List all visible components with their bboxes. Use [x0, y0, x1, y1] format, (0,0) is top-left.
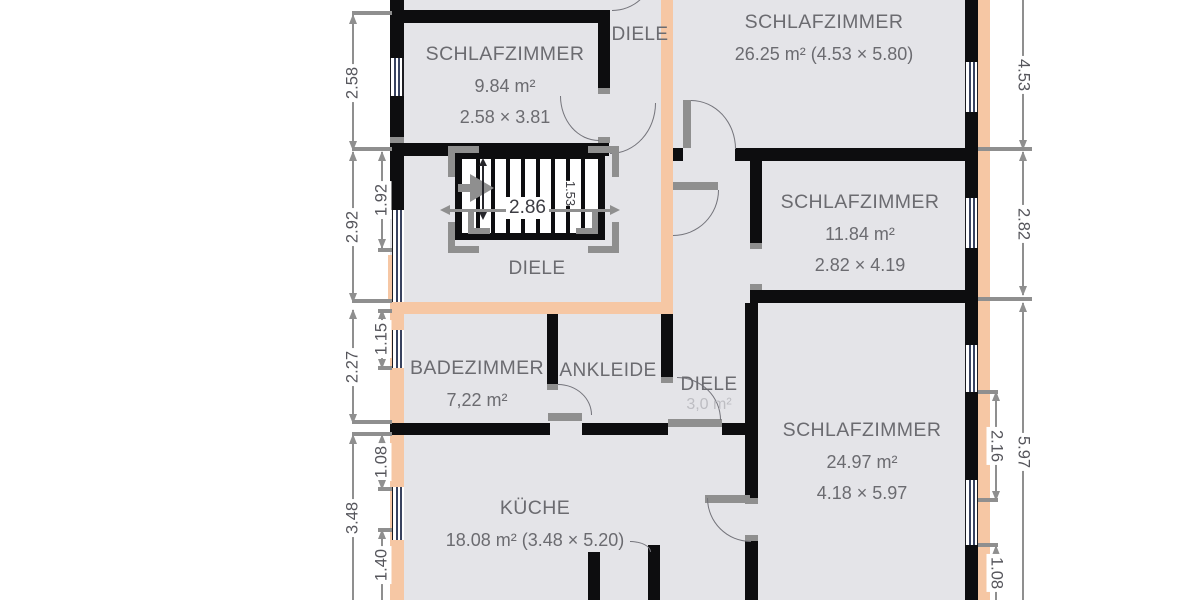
dim-tick [352, 11, 392, 15]
stair-bracket [448, 146, 479, 177]
room-name: DIELE [478, 258, 596, 280]
dim-right-outer-1: 4.53 [1022, 0, 1024, 149]
wall-cap [661, 377, 673, 383]
window [965, 480, 978, 545]
highlight-wall-hall-horizontal [390, 302, 661, 314]
dim-left-outer-2: 2.92 [352, 152, 354, 302]
dim-label: 1.40 [373, 546, 392, 584]
wall [750, 290, 965, 303]
stair-run-label: 2.86 [506, 197, 549, 219]
stair-width-label: 1.53 [563, 181, 578, 206]
wall-cap [598, 137, 610, 143]
wall [673, 148, 683, 161]
wall-cap [390, 137, 404, 143]
room-diele-upper: DIELE [598, 24, 682, 46]
dim-label: 3.48 [344, 498, 363, 536]
room-size: 2.58 × 3.81 [400, 102, 610, 133]
room-name: BADEZIMMER [396, 352, 558, 385]
stair-tread [521, 159, 525, 233]
dim-left-inner-3: 1.08 [381, 435, 383, 489]
room-name: DIELE [676, 374, 742, 396]
dim-label: 2.58 [344, 63, 363, 101]
room-name: SCHLAFZIMMER [400, 38, 610, 71]
room-name: KÜCHE [420, 492, 650, 525]
dim-label: 2.16 [987, 427, 1006, 465]
room-ankleide: ANKLEIDE [555, 360, 661, 382]
dim-left-outer-3: 2.27 [352, 310, 354, 423]
wall [965, 392, 978, 480]
dim-right-inner-1: 2.16 [995, 392, 997, 500]
room-kueche: KÜCHE 18.08 m² (3.48 × 5.20) [420, 492, 650, 556]
room-area: 18.08 m² (3.48 × 5.20) [420, 525, 650, 556]
dim-tick [352, 432, 392, 436]
stair-run-dim-arrow [440, 205, 450, 215]
room-size: 2.82 × 4.19 [756, 250, 964, 281]
window [392, 210, 404, 302]
room-badezimmer: BADEZIMMER 7,22 m² [396, 352, 558, 416]
wall [390, 423, 550, 435]
window [965, 62, 978, 112]
room-area-faint: 3,0 m² [686, 396, 731, 413]
door-leaf [673, 182, 718, 190]
wall [588, 552, 600, 600]
dim-right-inner-2: 1.08 [995, 546, 997, 600]
room-name: SCHLAFZIMMER [758, 414, 966, 447]
dim-left-outer-1: 2.58 [352, 15, 354, 150]
dim-label: 2.27 [344, 347, 363, 385]
room-size: 4.18 × 5.97 [758, 478, 966, 509]
dim-left-inner-2: 1.15 [381, 310, 383, 368]
window [965, 345, 978, 392]
dim-label: 1.08 [987, 554, 1006, 592]
stair-mini-dim-arrow [479, 158, 487, 166]
dim-label: 1.92 [373, 181, 392, 219]
dim-label: 5.97 [1014, 432, 1033, 470]
dim-right-outer-3: 5.97 [1022, 303, 1024, 600]
highlight-wall-center-vertical [661, 0, 673, 314]
room-name: ANKLEIDE [555, 360, 661, 382]
room-area: 26.25 m² (4.53 × 5.80) [688, 39, 960, 70]
dim-tick [352, 420, 392, 424]
stair-bracket [588, 146, 619, 177]
room-name: DIELE [598, 24, 682, 46]
wall [745, 303, 758, 498]
wall [745, 541, 758, 600]
stair-tread [536, 159, 540, 233]
dim-label: 4.53 [1014, 55, 1033, 93]
dim-tick [352, 299, 392, 303]
dim-label: 2.82 [1014, 204, 1033, 242]
window [965, 198, 978, 248]
dim-left-inner-4: 1.40 [381, 530, 383, 600]
room-area: 11.84 m² [756, 219, 964, 250]
room-diele-small: DIELE 3,0 m² [676, 374, 742, 414]
dim-left-outer-4: 3.48 [352, 435, 354, 600]
dim-tick [352, 147, 392, 151]
room-area: 9.84 m² [400, 71, 610, 102]
stair-tread [506, 159, 510, 233]
dim-label: 1.15 [373, 320, 392, 358]
wall [390, 10, 610, 23]
window [392, 487, 404, 540]
room-schlafzimmer-1: SCHLAFZIMMER 9.84 m² 2.58 × 3.81 [400, 38, 610, 133]
wall-cap [750, 284, 762, 290]
stair-tread [551, 159, 555, 233]
wall [735, 148, 965, 161]
room-schlafzimmer-2: SCHLAFZIMMER 26.25 m² (4.53 × 5.80) [688, 6, 960, 70]
room-name: SCHLAFZIMMER [756, 186, 964, 219]
wall [965, 112, 978, 198]
stair-run-dim-arrow [610, 205, 620, 215]
wall [965, 0, 978, 62]
dim-label: 2.92 [344, 208, 363, 246]
wall [582, 423, 668, 435]
stair-mini-dim-arrow [479, 212, 487, 220]
room-diele-hall: DIELE [478, 258, 596, 280]
wall [965, 248, 978, 345]
room-name: SCHLAFZIMMER [688, 6, 960, 39]
stair-bracket [576, 212, 598, 234]
stair-mini-dim [482, 164, 484, 212]
wall [661, 314, 673, 377]
dim-tick [978, 297, 1032, 301]
floor-plan: 2.86 1.53 SCHLAFZIMMER 9.84 m² 2.58 × 3.… [0, 0, 1200, 600]
room-schlafzimmer-3: SCHLAFZIMMER 11.84 m² 2.82 × 4.19 [756, 186, 964, 281]
door-leaf [683, 100, 691, 148]
door-sill [668, 419, 722, 427]
room-area: 24.97 m² [758, 447, 966, 478]
wall [722, 423, 745, 435]
dim-right-outer-2: 2.82 [1022, 152, 1024, 295]
dim-left-inner-1: 1.92 [381, 152, 383, 248]
dim-label: 1.08 [373, 443, 392, 481]
room-area: 7,22 m² [396, 385, 558, 416]
room-schlafzimmer-4: SCHLAFZIMMER 24.97 m² 4.18 × 5.97 [758, 414, 966, 509]
wall [965, 545, 978, 600]
